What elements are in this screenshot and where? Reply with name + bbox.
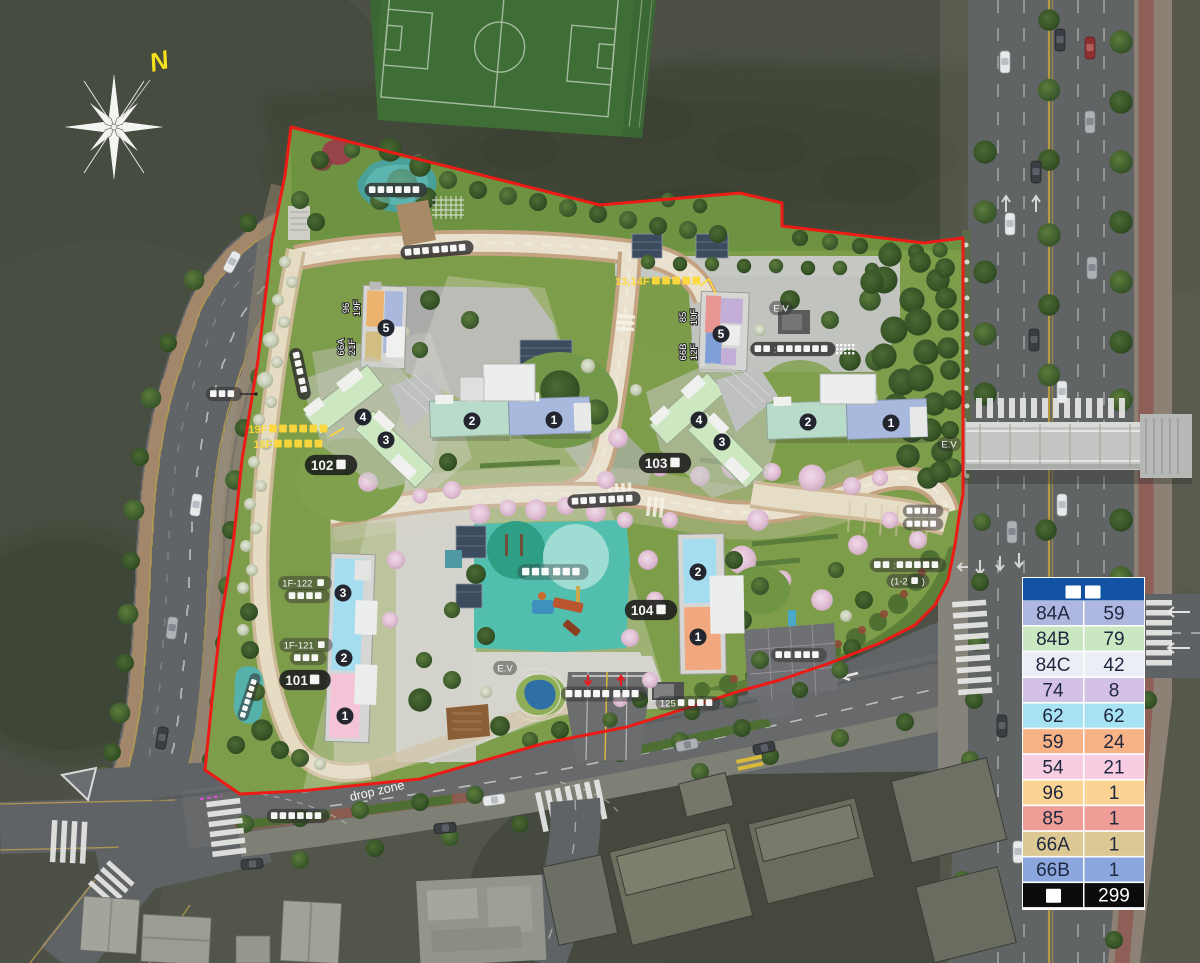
svg-text:2: 2 (695, 565, 702, 579)
svg-text:62: 62 (1042, 706, 1063, 727)
svg-text:66B: 66B (678, 344, 689, 361)
svg-text:5: 5 (383, 321, 390, 335)
svg-text:2: 2 (469, 414, 476, 428)
svg-text:3: 3 (383, 433, 390, 447)
svg-text:1: 1 (342, 709, 349, 723)
svg-text:85: 85 (1042, 809, 1063, 830)
svg-text:24: 24 (1103, 732, 1125, 753)
svg-text:66B: 66B (1036, 860, 1070, 881)
svg-text:1: 1 (1109, 834, 1120, 855)
svg-text:E.V: E.V (497, 663, 513, 674)
svg-text:84B: 84B (1036, 629, 1070, 650)
svg-text:66A: 66A (336, 338, 347, 356)
svg-text:103: 103 (645, 456, 668, 471)
svg-text:85: 85 (678, 312, 689, 323)
svg-text:(1-2: (1-2 (891, 576, 908, 587)
svg-text:10F: 10F (689, 309, 700, 326)
svg-text:1: 1 (1109, 783, 1120, 804)
svg-text::: : (774, 344, 777, 355)
svg-text:E.V: E.V (941, 439, 957, 450)
svg-text:1: 1 (551, 413, 558, 427)
svg-text::: : (893, 560, 896, 571)
svg-text:1: 1 (888, 416, 895, 430)
svg-text:1: 1 (1109, 809, 1120, 830)
svg-text:18F: 18F (253, 439, 272, 451)
svg-text:5: 5 (718, 327, 725, 341)
svg-text:19F: 19F (248, 424, 267, 436)
svg-text:96: 96 (341, 303, 352, 314)
svg-text:2: 2 (341, 651, 348, 665)
svg-text:101: 101 (285, 673, 308, 688)
svg-text:42: 42 (1103, 655, 1124, 676)
svg-text:8: 8 (1109, 681, 1120, 702)
svg-text:84A: 84A (1036, 604, 1070, 625)
svg-text:1F-121: 1F-121 (284, 640, 314, 651)
svg-text:84C: 84C (1036, 655, 1071, 676)
svg-text:21: 21 (1103, 757, 1124, 778)
svg-text:104: 104 (631, 603, 654, 618)
svg-text:19F: 19F (352, 300, 363, 317)
svg-text:79: 79 (1103, 629, 1124, 650)
svg-text:13,14F: 13,14F (615, 276, 650, 288)
svg-text:): ) (922, 576, 925, 587)
svg-text:3: 3 (719, 435, 726, 449)
svg-text:62: 62 (1103, 706, 1124, 727)
svg-text:1F-122: 1F-122 (282, 578, 312, 589)
svg-text:74: 74 (1042, 681, 1064, 702)
svg-text:1: 1 (695, 630, 702, 644)
svg-text:1: 1 (1109, 860, 1120, 881)
svg-text:12F: 12F (689, 344, 700, 361)
svg-text:21F: 21F (347, 339, 358, 356)
svg-text:4: 4 (360, 410, 367, 424)
svg-text:102: 102 (311, 458, 334, 473)
svg-text:299: 299 (1098, 886, 1130, 907)
svg-text:E.V: E.V (773, 303, 789, 314)
svg-text:96: 96 (1042, 783, 1063, 804)
svg-text:3: 3 (340, 586, 347, 600)
svg-text:125: 125 (660, 698, 676, 709)
svg-text:2: 2 (805, 415, 812, 429)
svg-text:54: 54 (1042, 757, 1064, 778)
svg-text:4: 4 (696, 413, 703, 427)
svg-text:59: 59 (1103, 604, 1124, 625)
svg-text:59: 59 (1042, 732, 1063, 753)
svg-text:66A: 66A (1036, 834, 1070, 855)
